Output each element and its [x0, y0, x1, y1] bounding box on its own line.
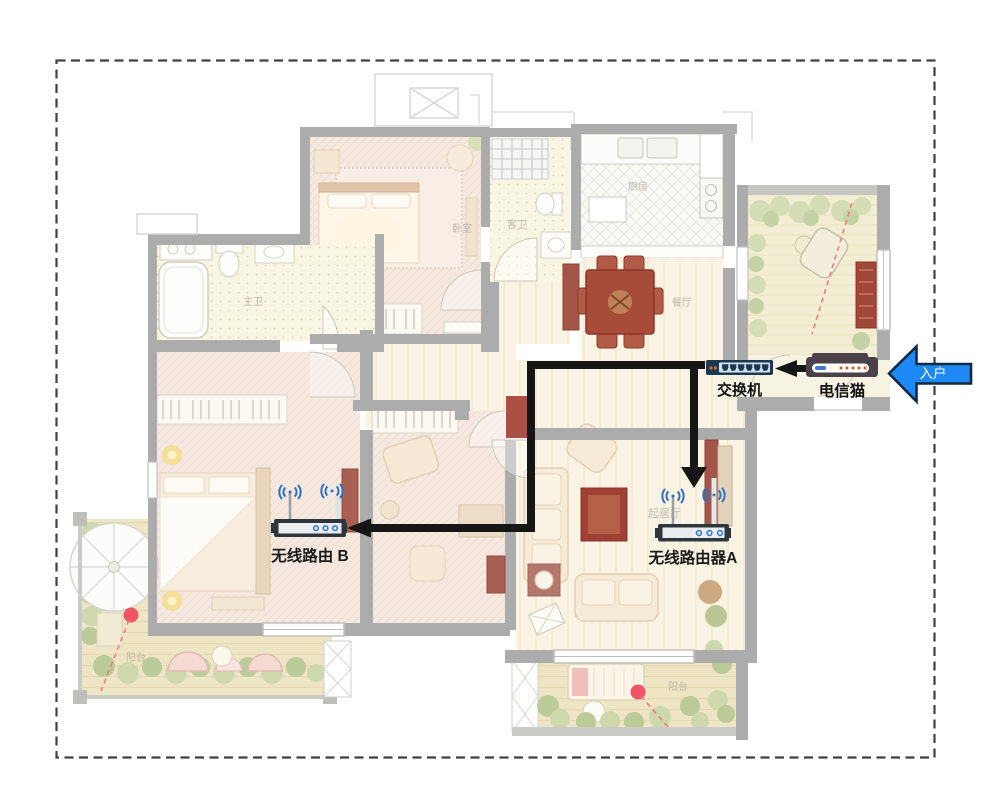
svg-text:入户: 入户 [920, 365, 947, 381]
svg-text:无线路由 B: 无线路由 B [270, 546, 349, 565]
svg-text:电信猫: 电信猫 [819, 381, 866, 400]
svg-text:无线路由器A: 无线路由器A [648, 548, 738, 567]
svg-text:交换机: 交换机 [717, 381, 762, 399]
